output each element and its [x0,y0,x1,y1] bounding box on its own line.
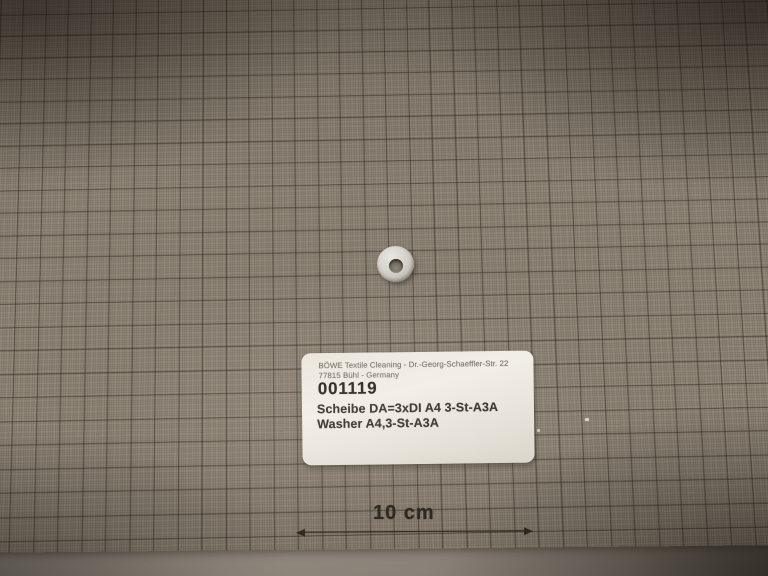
arrowhead-right-icon [524,527,533,535]
millimeter-graph-paper [0,0,768,576]
scale-label: 10 cm [373,502,435,525]
company-line: BÖWE Textile Cleaning - Dr.-Georg-Schaef… [318,359,508,371]
photo-stage: BÖWE Textile Cleaning - Dr.-Georg-Schaef… [0,0,768,576]
description-english: Washer A4,3-St-A3A [317,416,439,431]
label-card: BÖWE Textile Cleaning - Dr.-Georg-Schaef… [301,351,534,466]
dust-speck [537,429,540,432]
part-number: 001119 [318,378,378,399]
arrow-line [299,530,530,533]
washer-object [377,246,414,282]
description-german: Scheibe DA=3xDI A4 3-St-A3A [317,400,498,416]
dust-speck [585,418,589,421]
scale-arrow [296,526,533,537]
washer-hole [389,259,403,273]
